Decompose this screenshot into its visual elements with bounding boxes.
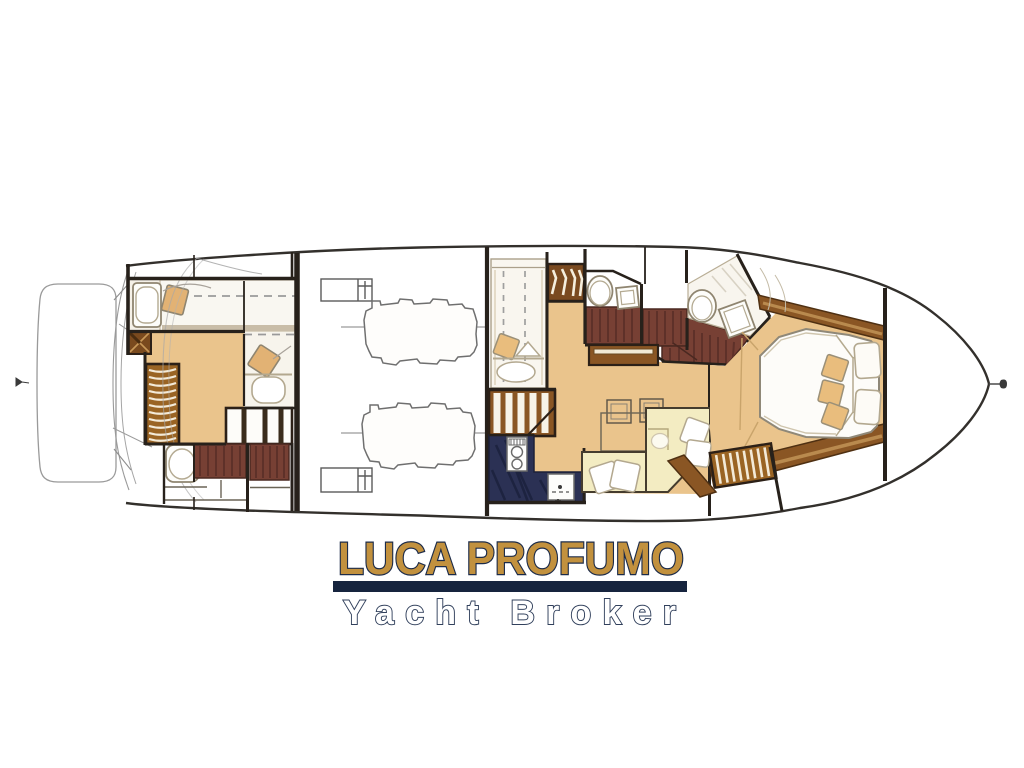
svg-text:Yacht Broker: Yacht Broker — [343, 594, 685, 632]
svg-text:LUCA PROFUMO: LUCA PROFUMO — [338, 533, 684, 584]
